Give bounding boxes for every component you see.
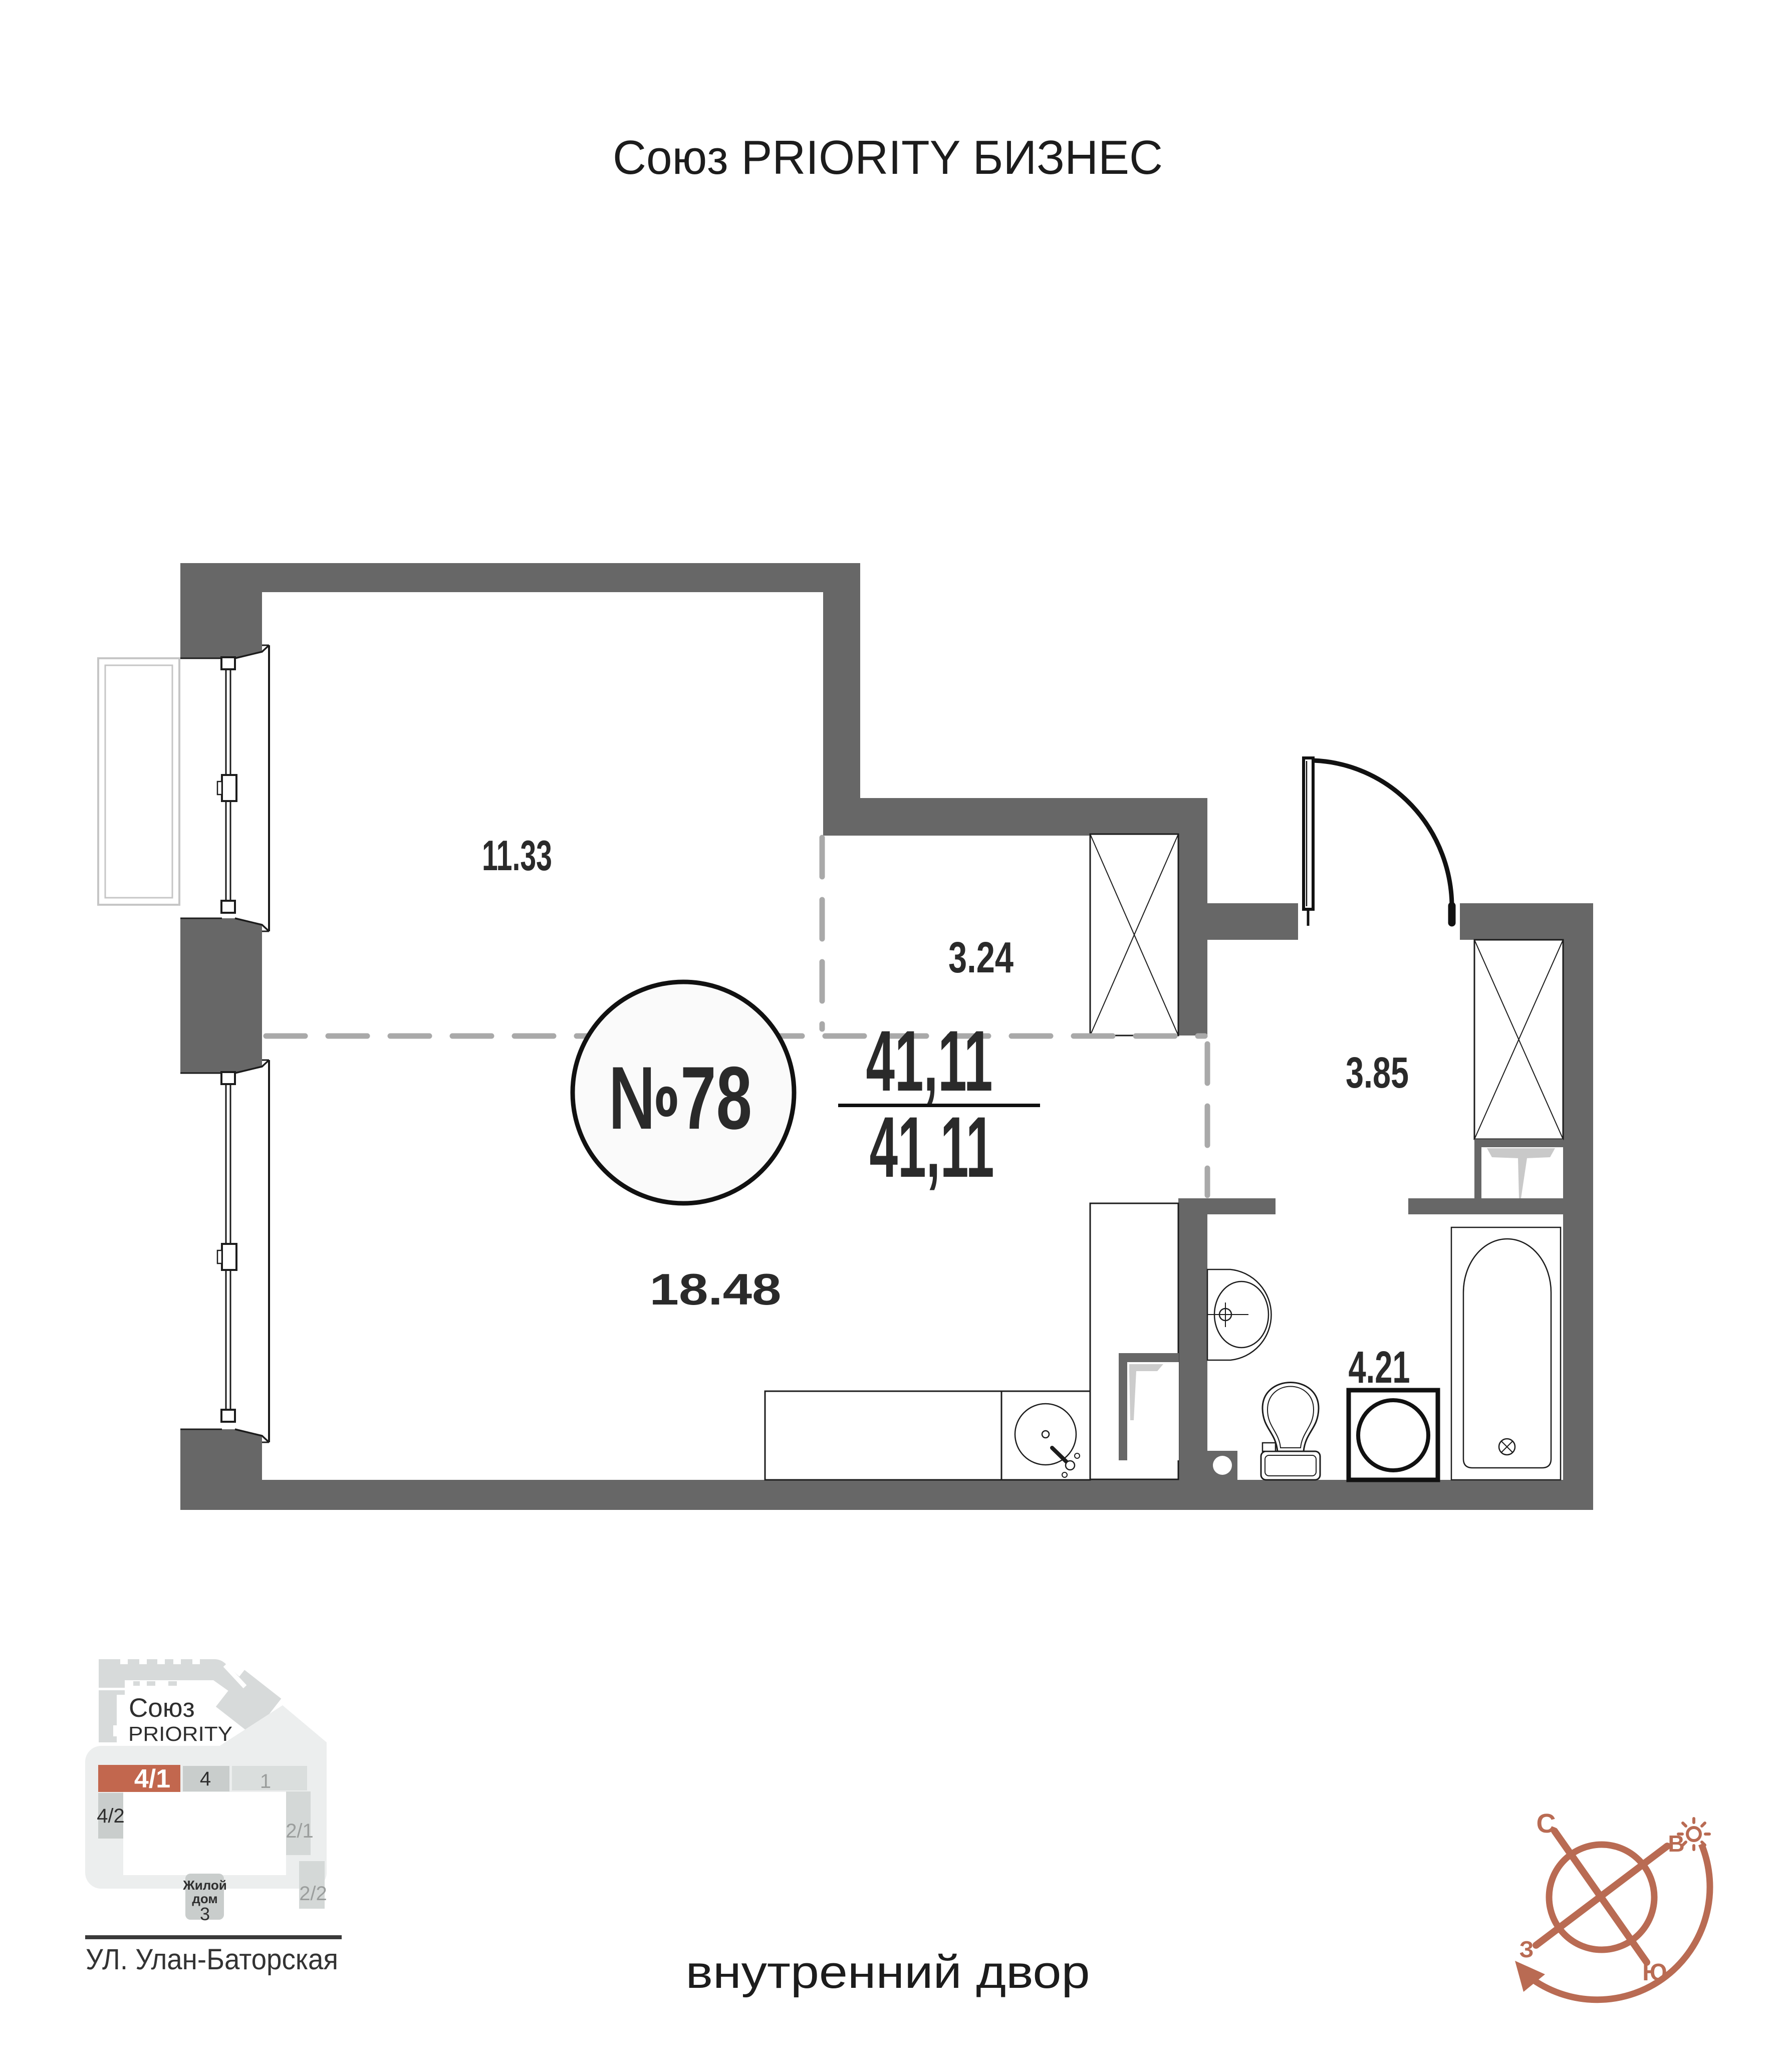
svg-text:№78: №78 [609, 1048, 752, 1148]
svg-text:41,11: 41,11 [870, 1099, 994, 1195]
svg-text:3.85: 3.85 [1346, 1049, 1409, 1097]
svg-text:Союз PRIORITY БИЗНЕС: Союз PRIORITY БИЗНЕС [613, 131, 1163, 184]
svg-text:Жилой: Жилой [182, 1878, 227, 1893]
svg-text:3: 3 [200, 1904, 210, 1924]
svg-text:2/1: 2/1 [286, 1820, 314, 1842]
svg-text:4: 4 [200, 1768, 211, 1790]
svg-text:1: 1 [260, 1770, 271, 1792]
svg-text:41,11: 41,11 [866, 1013, 993, 1109]
svg-text:11.33: 11.33 [482, 832, 552, 880]
svg-text:4.21: 4.21 [1349, 1343, 1410, 1393]
svg-text:Союз: Союз [129, 1693, 195, 1723]
svg-text:4/2: 4/2 [97, 1805, 125, 1827]
svg-text:2/2: 2/2 [299, 1883, 327, 1905]
svg-text:Ю: Ю [1642, 1959, 1667, 1986]
svg-text:З: З [1519, 1936, 1534, 1962]
svg-text:18.48: 18.48 [650, 1264, 782, 1314]
svg-text:УЛ. Улан-Баторская: УЛ. Улан-Баторская [86, 1943, 338, 1976]
svg-text:4/1: 4/1 [134, 1764, 170, 1793]
svg-text:3.24: 3.24 [948, 933, 1013, 982]
svg-text:PRIORITY: PRIORITY [128, 1722, 232, 1745]
svg-text:внутренний двор: внутренний двор [686, 1947, 1090, 1998]
svg-text:В: В [1668, 1831, 1684, 1857]
svg-text:С: С [1537, 1808, 1556, 1839]
